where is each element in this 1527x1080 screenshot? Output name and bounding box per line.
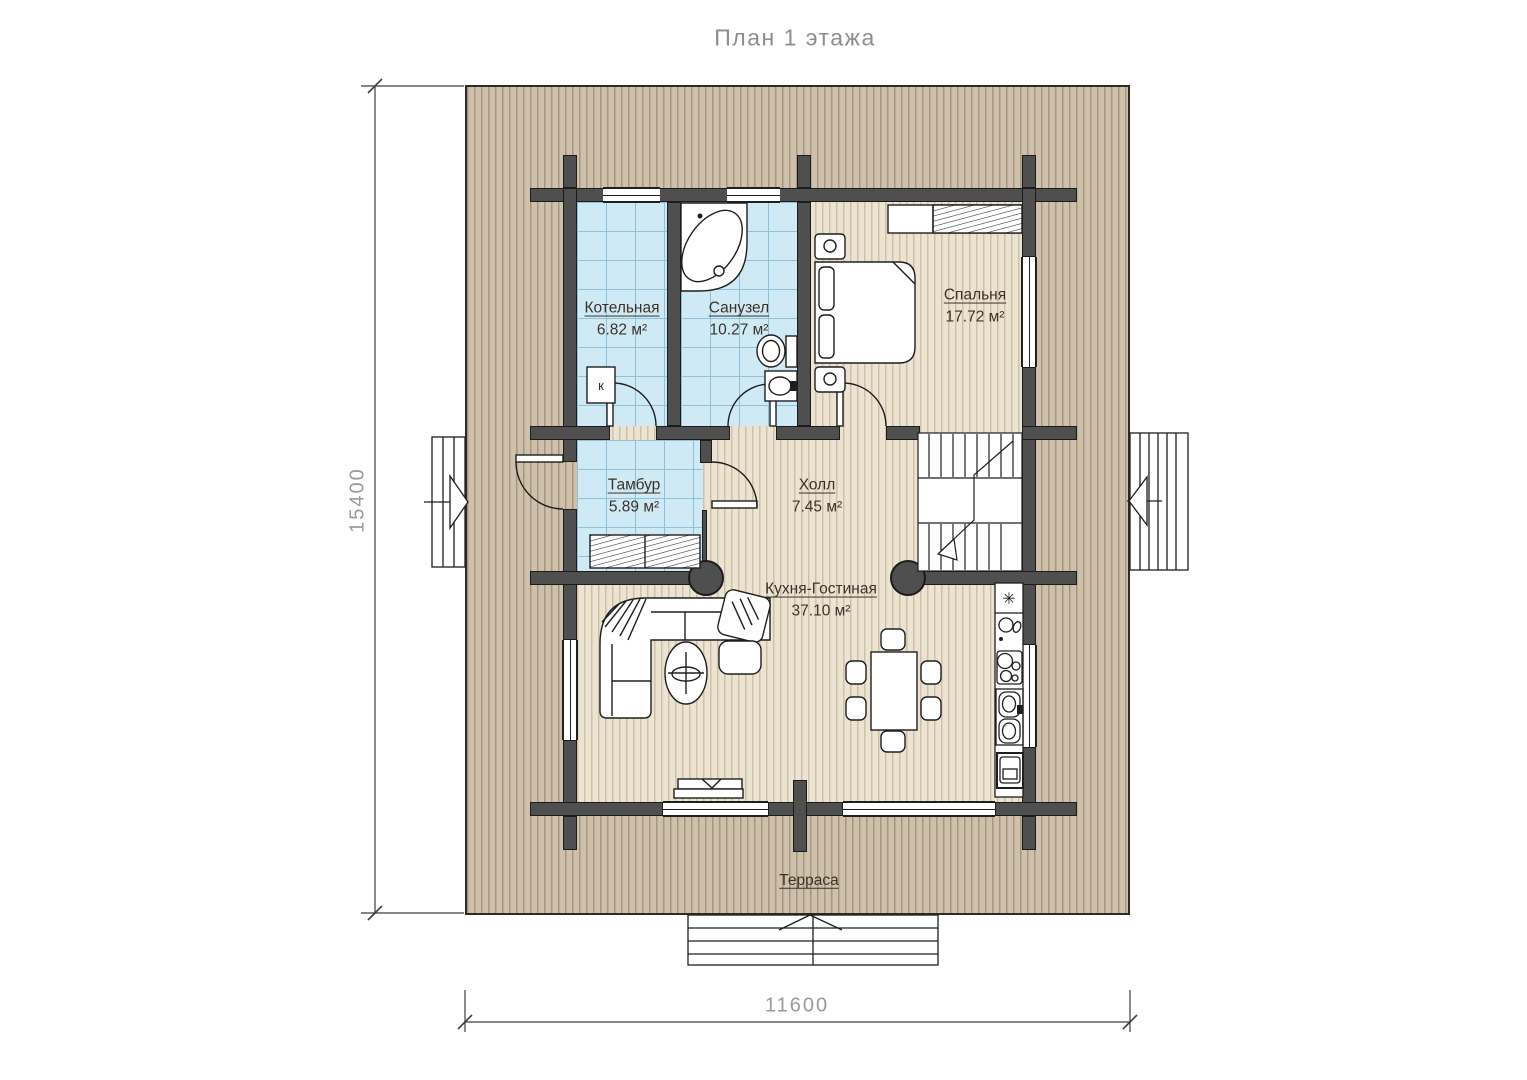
- dining-set: [846, 629, 941, 752]
- bathtub: [669, 199, 754, 292]
- dimension-vertical-label: 15400: [347, 467, 370, 533]
- floor-plan-canvas: План 1 этажа: [0, 0, 1527, 1080]
- tv-stand: [674, 779, 743, 798]
- vestibule-door: [712, 462, 757, 508]
- coffee-table-plant: [665, 642, 707, 704]
- room-name: Котельная: [584, 298, 659, 320]
- room-label-hall: Холл 7.45 м²: [792, 475, 842, 520]
- room-area: 6.82 м²: [584, 320, 659, 342]
- room-label-vestibule: Тамбур 5.89 м²: [608, 475, 661, 520]
- room-label-bedroom: Спальня 17.72 м²: [944, 285, 1006, 330]
- entrance-door: [516, 455, 563, 509]
- room-name: Спальня: [944, 285, 1006, 307]
- wardrobe: [888, 205, 1022, 233]
- steps-left: [424, 437, 468, 567]
- room-label-terrace: Терраса: [779, 870, 838, 892]
- room-name: Тамбур: [608, 475, 661, 497]
- steps-right: [1127, 433, 1188, 570]
- bathroom-sink: [765, 371, 797, 401]
- room-name: Холл: [792, 475, 842, 497]
- steps-terrace: [688, 915, 938, 965]
- room-area: 37.10 м²: [765, 601, 877, 623]
- room-name: Терраса: [779, 870, 838, 892]
- staircase: [918, 433, 1022, 571]
- vestibule-bench: [590, 535, 700, 568]
- kitchen-counter: ✳: [995, 583, 1023, 797]
- room-area: 17.72 м²: [944, 307, 1006, 329]
- room-area: 7.45 м²: [792, 497, 842, 519]
- room-name: Кухня-Гостиная: [765, 579, 877, 601]
- room-area: 10.27 м²: [709, 320, 769, 342]
- bed: [815, 262, 915, 363]
- room-label-kitchen-living: Кухня-Гостиная 37.10 м²: [765, 579, 877, 624]
- svg-text:к: к: [598, 378, 604, 393]
- plan-symbols: к: [0, 0, 1527, 1080]
- room-name: Санузел: [709, 298, 769, 320]
- room-area: 5.89 м²: [608, 497, 661, 519]
- boiler-unit: к: [587, 367, 615, 403]
- dimension-horizontal-label: 11600: [765, 995, 829, 1018]
- room-label-bathroom: Санузел 10.27 м²: [709, 298, 769, 343]
- room-label-boiler: Котельная 6.82 м²: [584, 298, 659, 343]
- ottoman: [719, 641, 761, 674]
- fridge-symbol: ✳: [1002, 591, 1015, 608]
